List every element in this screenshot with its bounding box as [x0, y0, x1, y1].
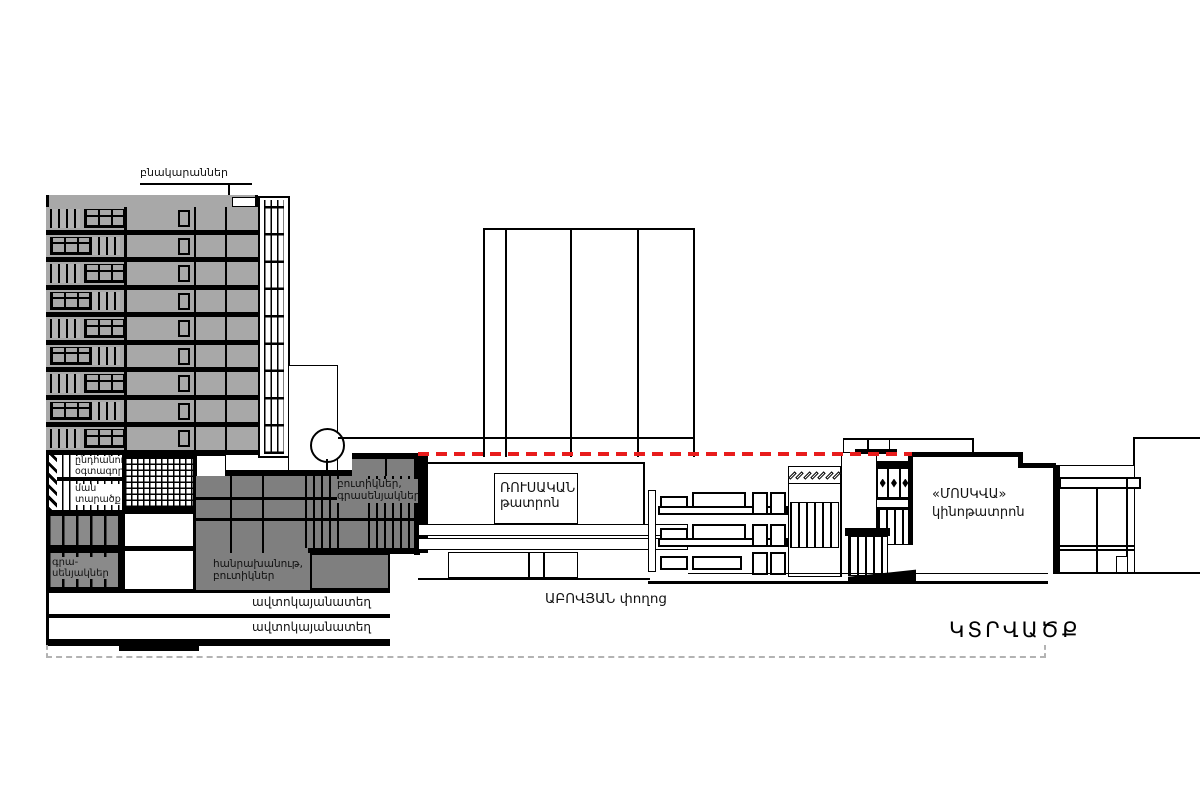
- podium-left-wall: [46, 455, 49, 646]
- sidewalk-line: [688, 573, 1048, 574]
- diamond-icon: [891, 479, 897, 488]
- wall-divider: [194, 427, 196, 450]
- wall-divider: [194, 207, 196, 230]
- storefront-stripes: [310, 553, 390, 590]
- door-slot: [178, 265, 190, 282]
- diamond-icon: [796, 471, 804, 479]
- wall-divider: [225, 290, 227, 313]
- diamond-ornament-row: [877, 468, 911, 498]
- window: [770, 492, 786, 515]
- wall-divider: [225, 317, 227, 340]
- column-line: [262, 476, 264, 553]
- section-drawing: բնակարաններ ընդհանուր օգտագործ ման տարած…: [0, 0, 1200, 801]
- window-grid-group: [50, 402, 90, 421]
- wall-divider: [124, 235, 127, 258]
- window-strip-group: [90, 292, 120, 311]
- window-strip-group: [50, 264, 80, 283]
- ornament-cell: [877, 468, 888, 498]
- window-grid-group: [50, 347, 90, 366]
- boutiques-offices-label: բուտիկներ, գրասենյակներ: [337, 479, 420, 503]
- wall-divider: [194, 317, 196, 340]
- wall-divider: [124, 290, 127, 313]
- window-grid-group: [50, 292, 90, 311]
- facade-mullions: [264, 200, 284, 454]
- window-strip-group: [50, 319, 80, 338]
- tower-floor: [46, 235, 258, 263]
- column-line: [230, 476, 232, 553]
- apartments-label-underline: [140, 183, 252, 185]
- wall-divider: [225, 345, 227, 368]
- floor-line: [196, 497, 356, 500]
- heavy-roofline: [1018, 463, 1056, 468]
- tower-floors: [46, 207, 258, 455]
- door-slot: [178, 430, 190, 447]
- window: [752, 524, 768, 547]
- entrance-colonnade: [848, 536, 888, 576]
- offices-label-text: գրա- սենյակներ: [52, 557, 109, 579]
- door-slot: [178, 210, 190, 227]
- diamond-icon: [825, 471, 833, 479]
- ornament-band: [877, 498, 911, 509]
- diamond-icon: [880, 479, 886, 488]
- door-slot: [178, 293, 190, 310]
- tower-floor: [46, 427, 258, 455]
- tower-panel-line: [570, 230, 572, 457]
- window-grid-group: [84, 209, 124, 228]
- window-strip-group: [50, 209, 80, 228]
- wall-divider: [194, 290, 196, 313]
- tower-floor: [46, 345, 258, 373]
- parapet-line: [338, 437, 695, 439]
- ornament-right-wall: [908, 455, 913, 545]
- window: [752, 492, 768, 515]
- door-slot: [178, 320, 190, 337]
- window-grid-group: [84, 429, 124, 448]
- common-use-lower-label: ման տարածք: [75, 484, 121, 505]
- parking-lower-label: ավտոկայանատեղ: [252, 621, 371, 634]
- office-floor-1: [46, 514, 122, 547]
- wall-divider: [124, 427, 127, 450]
- window-strip-group: [90, 402, 120, 421]
- wall-divider: [124, 345, 127, 368]
- heavy-roofline: [912, 452, 1022, 457]
- window-strip-group: [90, 347, 120, 366]
- wall-divider: [194, 262, 196, 285]
- wall-divider: [225, 427, 227, 450]
- diamond-frieze: [789, 468, 840, 484]
- tower-floor: [46, 262, 258, 290]
- wall-divider: [385, 457, 387, 476]
- tree-symbol: [310, 428, 345, 463]
- section-title: ԿՏՐՎԱԾՔ: [949, 619, 1081, 643]
- wall-divider: [194, 372, 196, 395]
- wall-divider: [225, 400, 227, 423]
- parking-upper-label: ավտոկայանատեղ: [252, 596, 371, 609]
- abovyan-street-label: ԱԲՈՎՅԱՆ փողոց: [545, 592, 667, 607]
- wall-divider: [124, 317, 127, 340]
- window-grid-group: [84, 264, 124, 283]
- ornament-cell: [888, 468, 899, 498]
- door-line: [528, 552, 530, 578]
- floor-line: [1059, 549, 1135, 551]
- wall-divider: [124, 400, 127, 423]
- underground-outline: [46, 645, 1046, 658]
- tower-floor: [46, 290, 258, 318]
- section-datum-line: [418, 452, 912, 456]
- base-notch: [1116, 556, 1128, 573]
- wall-divider: [225, 372, 227, 395]
- window-stripes: [305, 476, 341, 548]
- apartments-label: բնակարաններ: [140, 167, 228, 179]
- window-band: [658, 538, 788, 547]
- cinema-roof-line: [843, 438, 973, 440]
- window-band: [658, 506, 788, 515]
- russian-theater-label: ՌՈՒՍԱԿԱՆ թատրոն: [500, 482, 575, 511]
- theater-right-wall-line: [643, 462, 645, 524]
- window: [770, 552, 786, 575]
- window-strip-group: [50, 374, 80, 393]
- theater-base-block: [448, 552, 578, 578]
- wall-divider: [1096, 489, 1098, 573]
- tower-roof-notch: [232, 197, 256, 207]
- wall-divider: [225, 235, 227, 258]
- window-grid-group: [84, 374, 124, 393]
- wall-divider: [194, 235, 196, 258]
- wall-divider: [124, 372, 127, 395]
- theater-roof-line: [418, 462, 645, 464]
- ground-line: [648, 581, 1048, 584]
- floor-line: [1059, 545, 1135, 547]
- tower-floor: [46, 400, 258, 428]
- crosshatch-block: [122, 455, 196, 510]
- wall-divider: [225, 262, 227, 285]
- ground-line: [418, 578, 650, 580]
- tower-panel-line: [637, 230, 639, 457]
- door-line: [543, 552, 545, 578]
- wall-divider: [124, 262, 127, 285]
- shaft-landing: [122, 546, 196, 551]
- pilaster: [648, 490, 656, 572]
- window: [660, 556, 688, 570]
- window-strip-group: [50, 429, 80, 448]
- ground-line: [1053, 572, 1200, 574]
- window-strip-group: [90, 237, 120, 256]
- backdrop-roof-line: [1133, 437, 1200, 439]
- moskva-cinema-label: «ՄՈՍԿՎԱ» կինոթատրոն: [932, 486, 1025, 521]
- window-grid-group: [50, 237, 90, 256]
- wall-divider: [194, 400, 196, 423]
- wall-divider: [225, 207, 227, 230]
- tower-floor: [46, 372, 258, 400]
- right-building-band: [1059, 477, 1141, 489]
- central-tower: [483, 228, 695, 457]
- tower-panel-line: [505, 230, 507, 457]
- stair-zigzag: [48, 455, 57, 510]
- department-store-label: հանրախանութ, բուտիկներ: [213, 559, 303, 583]
- wall-divider: [194, 345, 196, 368]
- door-slot: [178, 238, 190, 255]
- wall-divider: [124, 207, 127, 230]
- cinema-colonnade: [790, 502, 839, 548]
- door-slot: [178, 375, 190, 392]
- window: [692, 556, 742, 570]
- window-grid-group: [84, 319, 124, 338]
- door-slot: [178, 403, 190, 420]
- tower-floor: [46, 207, 258, 235]
- window: [770, 524, 786, 547]
- window: [752, 552, 768, 575]
- canopy-slab: [845, 528, 890, 536]
- tower-floor: [46, 317, 258, 345]
- door-slot: [178, 348, 190, 365]
- tower-facade-strip: [258, 196, 290, 458]
